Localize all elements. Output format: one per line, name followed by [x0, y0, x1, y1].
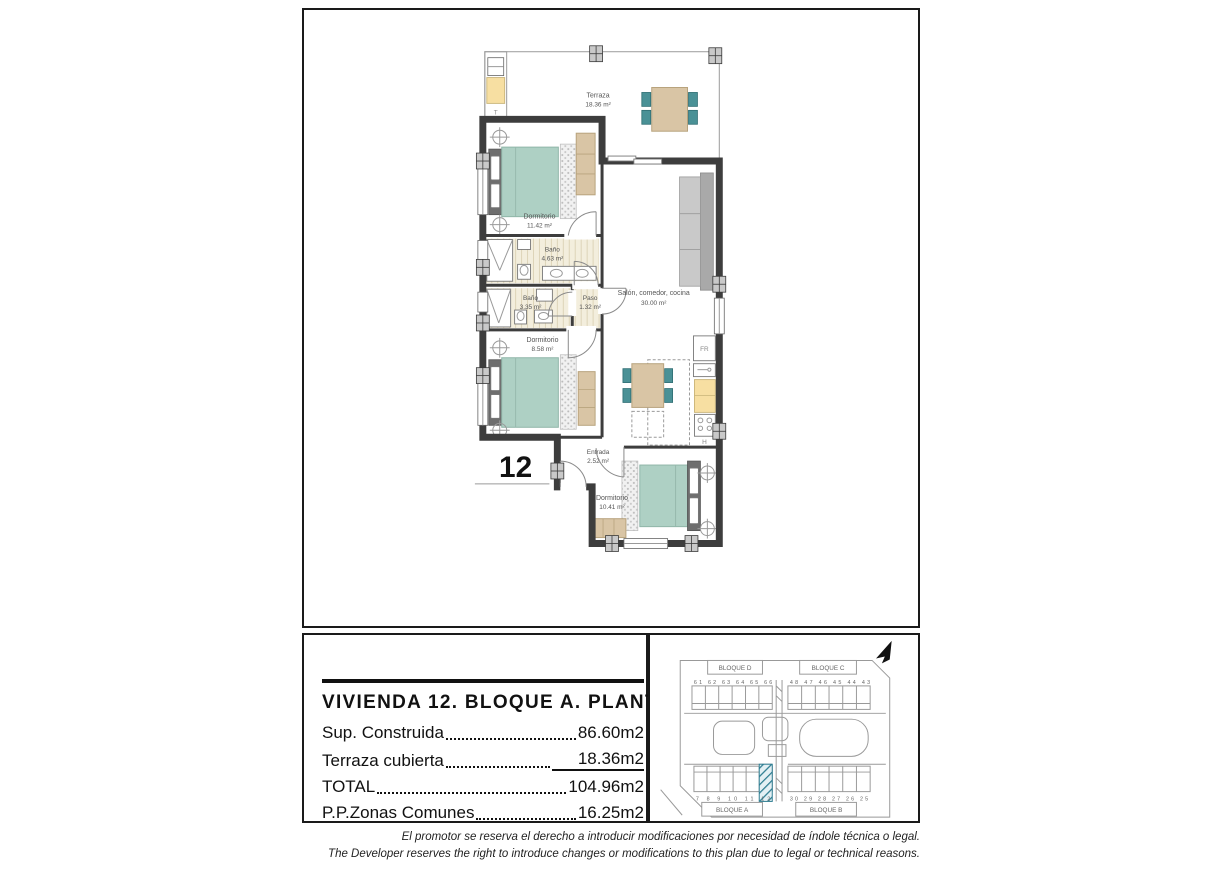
room-label: Dormitorio	[523, 214, 555, 221]
area-row-label: Sup. Construida	[322, 723, 444, 743]
terrace-chair	[642, 110, 651, 124]
room-label: Paso	[583, 295, 598, 302]
pillow	[491, 184, 500, 208]
site-plan-panel: BLOQUE D BLOQUE C 61 62 63 64 65 66 48 4…	[648, 633, 920, 823]
wardrobe	[578, 372, 595, 426]
pool-right	[800, 719, 869, 756]
sofa-back	[700, 173, 713, 290]
title-rule	[322, 679, 644, 683]
unit-row-top-left	[692, 686, 772, 709]
terrace-chair	[688, 110, 697, 124]
room-label: Salón, comedor, cocina	[618, 290, 690, 297]
units-block-c: 48 47 46 45 44 43	[790, 680, 870, 686]
bed	[640, 465, 688, 527]
dining-chair	[665, 369, 673, 383]
wardrobe	[576, 133, 595, 195]
area-row-value: 104.96m2	[568, 777, 644, 797]
unit-number: 12	[499, 451, 532, 484]
area-row: Terraza cubierta 18.36m2	[322, 749, 644, 771]
terrace-table	[642, 88, 698, 132]
room-area: 10.41 m²	[599, 504, 625, 511]
dot-leader	[446, 738, 576, 740]
title-block: VIVIENDA 12. BLOQUE A. PLANTA 1ª Sup. Co…	[302, 633, 648, 823]
unit-row-top-right	[788, 686, 870, 709]
terrace-label: Terraza	[587, 92, 610, 99]
area-row-value: 16.25m2	[578, 803, 644, 823]
terrace-chair	[642, 92, 651, 106]
block-c-label: BLOQUE C	[812, 665, 845, 672]
dining-chair	[665, 389, 673, 403]
shower	[487, 289, 511, 327]
terrace-chair	[688, 92, 697, 106]
room-area: 30.00 m²	[641, 300, 667, 307]
block-a-label: BLOQUE A	[716, 807, 749, 814]
sofa	[680, 177, 701, 286]
area-row-label: P.P.Zonas Comunes	[322, 803, 474, 823]
area-row: TOTAL 104.96m2	[322, 777, 644, 797]
toilet	[515, 310, 527, 324]
site-plan: BLOQUE D BLOQUE C 61 62 63 64 65 66 48 4…	[650, 635, 918, 821]
laundry-cabinet	[487, 78, 505, 104]
disclaimer: El promotor se reserva el derecho a intr…	[302, 829, 920, 864]
room-area: 1.32 m²	[579, 304, 602, 311]
unit-row-bottom-right	[788, 766, 870, 791]
disclaimer-es: El promotor se reserva el derecho a intr…	[302, 829, 920, 846]
dining-chair	[623, 369, 631, 383]
room-area: 2.52 m²	[587, 458, 610, 465]
units-block-b: 30 29 28 27 26 25	[790, 796, 868, 802]
pillow	[491, 156, 500, 180]
pillow	[491, 367, 500, 391]
area-row-label: TOTAL	[322, 777, 375, 797]
room-label: Baño	[545, 246, 560, 253]
shower	[487, 240, 513, 282]
bed	[502, 358, 559, 428]
dining-table	[632, 364, 664, 408]
room-area: 3.35 m²	[520, 304, 543, 311]
block-d-label: BLOQUE D	[719, 665, 752, 672]
rug	[560, 144, 576, 219]
room-area: 11.42 m²	[527, 223, 553, 230]
dot-leader	[476, 818, 575, 820]
units-block-d: 61 62 63 64 65 66	[694, 680, 772, 686]
kitchen-sink	[693, 364, 715, 377]
common-area	[684, 713, 886, 764]
block-b-label: BLOQUE B	[810, 807, 843, 814]
kitchen-appliances: FR H	[693, 336, 715, 446]
dot-leader	[377, 792, 566, 794]
pillow	[689, 498, 698, 524]
area-row-value: 18.36m2	[552, 749, 644, 771]
north-arrow-icon	[876, 641, 892, 664]
pool-left	[714, 721, 755, 754]
room-label: Baño	[523, 295, 538, 302]
sliding-door	[634, 159, 662, 164]
toilet	[518, 264, 531, 279]
disclaimer-en: The Developer reserves the right to intr…	[302, 846, 920, 863]
kitchen-counter	[694, 380, 715, 413]
pillow	[491, 395, 500, 419]
oven-tag: H	[702, 439, 707, 446]
area-row: Sup. Construida 86.60m2	[322, 723, 644, 743]
dining-chair	[623, 389, 631, 403]
floor-plan: T Terraza 18.36 m²	[304, 10, 918, 626]
wardrobe	[592, 519, 626, 538]
bed	[502, 147, 559, 217]
page-title: VIVIENDA 12. BLOQUE A. PLANTA 1ª	[322, 692, 644, 714]
area-row-value: 86.60m2	[578, 723, 644, 743]
sliding-door	[608, 156, 636, 161]
hob	[694, 414, 715, 436]
room-label: Dormitorio	[596, 495, 628, 502]
room-area: 4.63 m²	[541, 255, 564, 262]
dot-leader	[446, 766, 550, 768]
room-area: 8.58 m²	[532, 346, 555, 353]
laundry-tag: T	[494, 109, 498, 116]
area-row: P.P.Zonas Comunes 16.25m2	[322, 803, 644, 823]
rug	[560, 355, 576, 430]
fridge-tag: FR	[700, 346, 709, 353]
terrace-area: 18.36 m²	[585, 101, 611, 108]
area-row-label: Terraza cubierta	[322, 751, 444, 771]
floor-plan-panel: T Terraza 18.36 m²	[302, 8, 920, 628]
room-label: Entrada	[587, 449, 610, 456]
pillow	[689, 468, 698, 494]
room-label: Dormitorio	[526, 337, 558, 344]
